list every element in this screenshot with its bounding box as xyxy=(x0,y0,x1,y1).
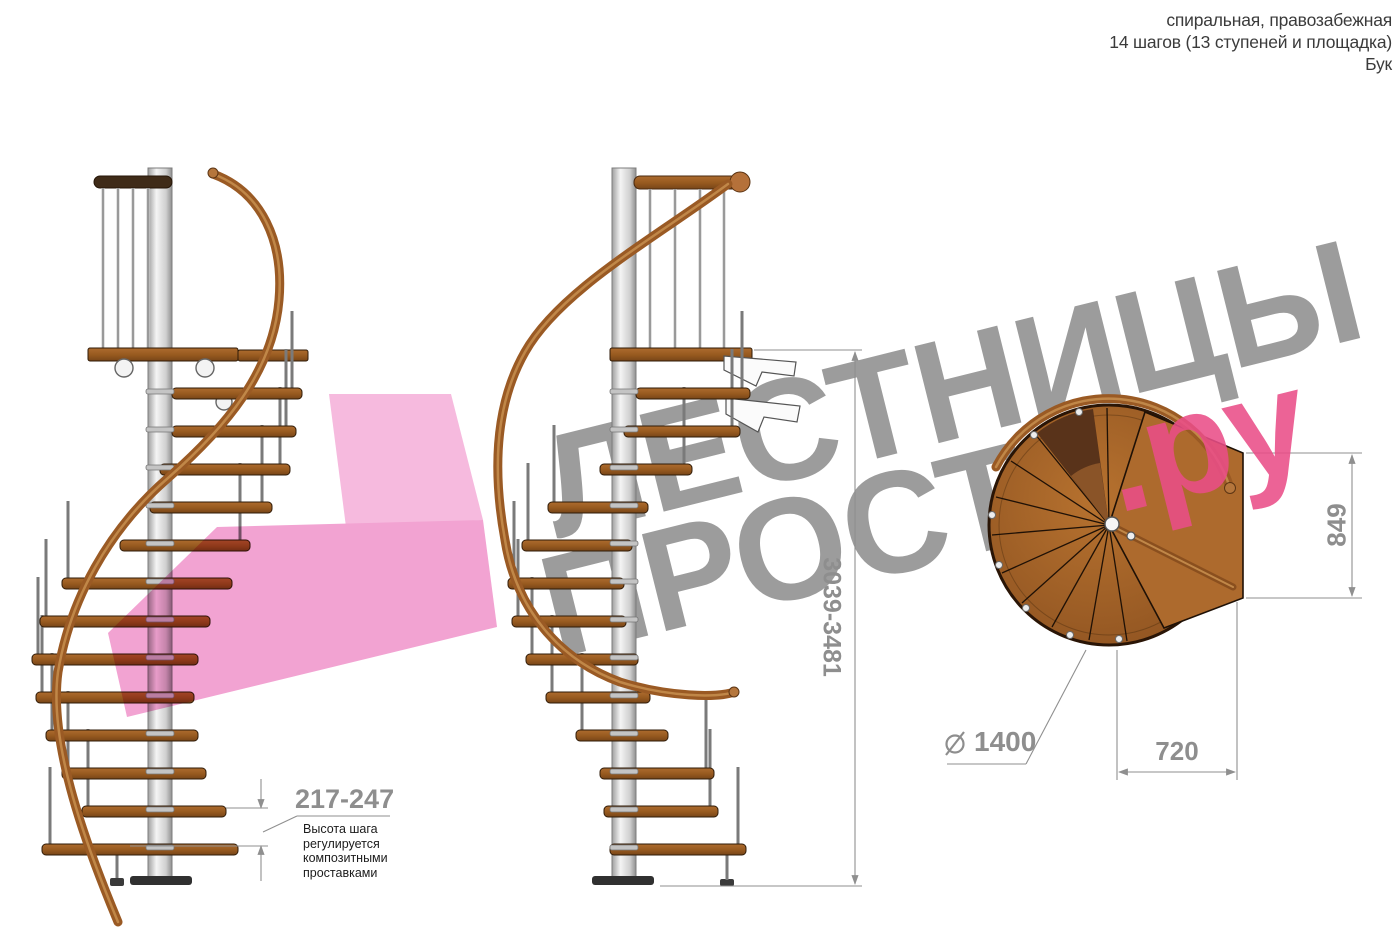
step-count-line: 14 шагов (13 ступеней и площадка) xyxy=(1109,31,1392,53)
title-block: спиральная, правозабежная 14 шагов (13 с… xyxy=(1109,9,1392,75)
total-height-dimension: 3039-3481 xyxy=(817,557,846,677)
stair-type-line: спиральная, правозабежная xyxy=(1109,9,1392,31)
platform-depth-dimension: 849 xyxy=(1322,503,1353,546)
arrow-body xyxy=(108,520,497,717)
step-height-dimension: 217-247 xyxy=(295,784,394,815)
note-line: Высота шага xyxy=(303,822,388,837)
arrow-upper-fold xyxy=(329,394,483,527)
diameter-icon xyxy=(942,727,968,757)
diameter-value: 1400 xyxy=(974,726,1036,758)
material-line: Бук xyxy=(1109,53,1392,75)
drawing-canvas: ЛЕСТНИЦЫ ПРОСТО xyxy=(0,0,1400,941)
note-line: проставками xyxy=(303,866,388,881)
note-line: композитными xyxy=(303,851,388,866)
platform-width-dimension: 720 xyxy=(1117,736,1237,767)
diameter-dimension: 1400 xyxy=(942,726,1036,758)
step-height-note: Высота шага регулируется композитными пр… xyxy=(303,822,388,880)
note-line: регулируется xyxy=(303,837,388,852)
